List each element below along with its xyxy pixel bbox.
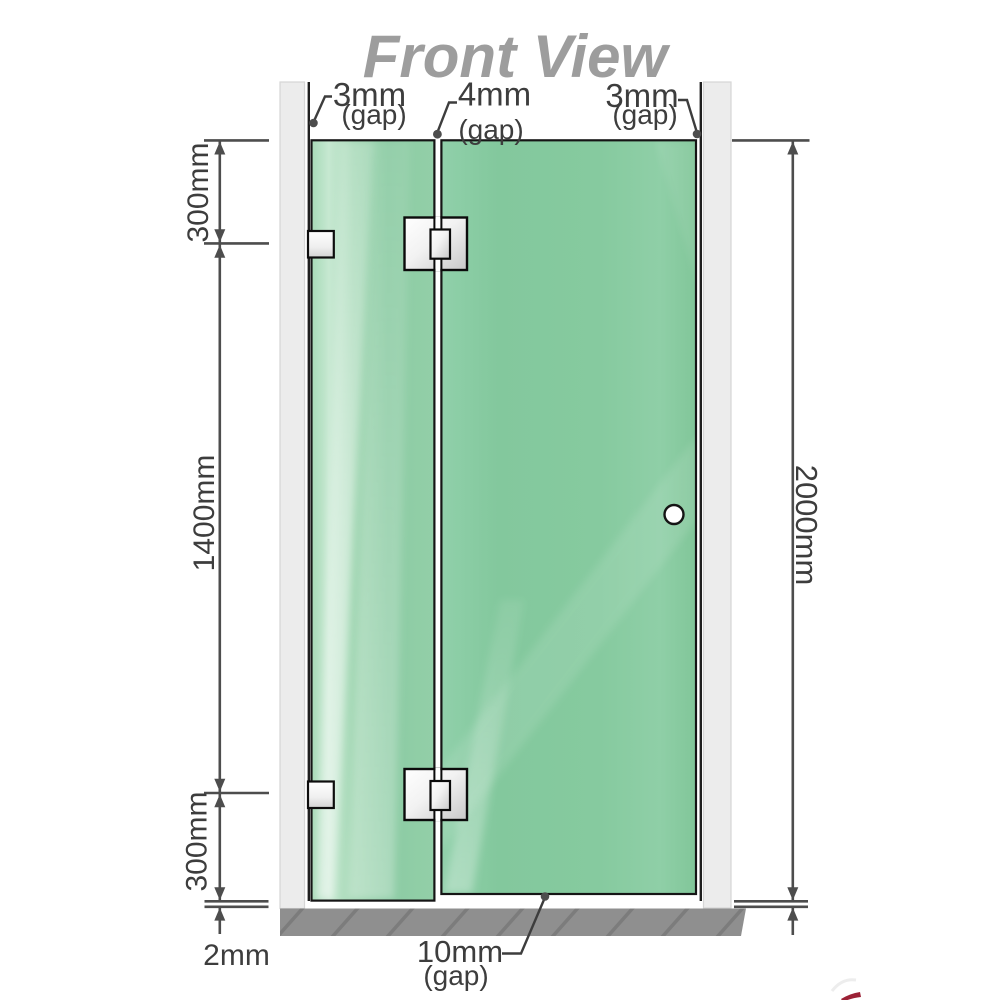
svg-text:300mm: 300mm [182, 142, 215, 242]
svg-text:(gap): (gap) [458, 114, 523, 145]
svg-text:(gap): (gap) [423, 960, 488, 991]
svg-text:2mm: 2mm [203, 939, 270, 972]
svg-text:(gap): (gap) [341, 99, 406, 130]
svg-text:1400mm: 1400mm [188, 455, 221, 572]
svg-text:4mm: 4mm [458, 76, 531, 113]
svg-text:(gap): (gap) [612, 99, 677, 130]
svg-text:300mm: 300mm [181, 791, 214, 891]
svg-text:2000mm: 2000mm [789, 465, 824, 586]
